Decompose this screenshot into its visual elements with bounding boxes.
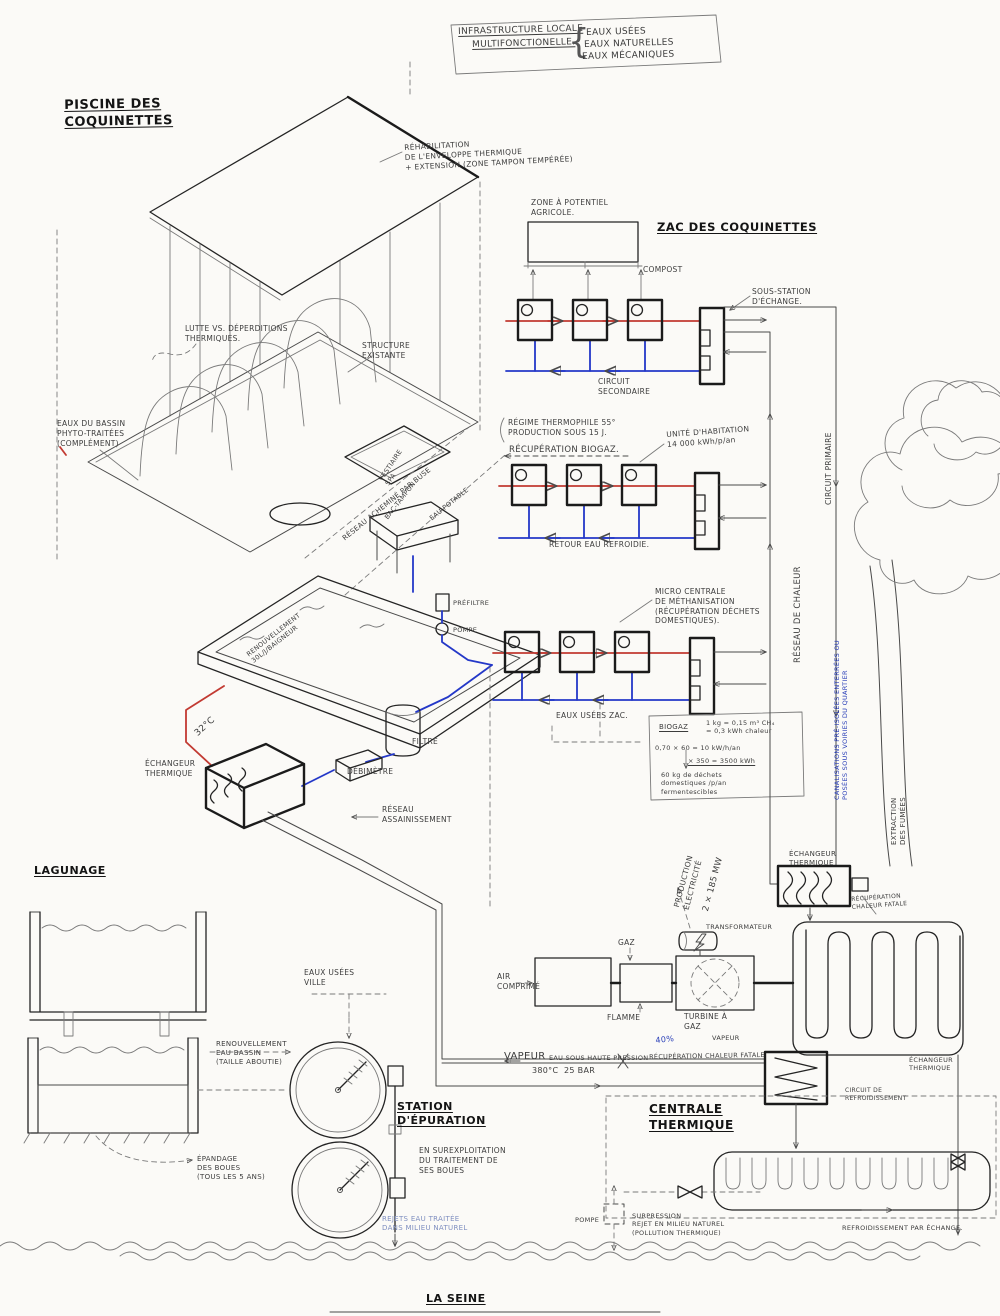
zac-title: ZAC DES COQUINETTES xyxy=(657,220,817,235)
echangeur-thermique-vapeur: ÉCHANGEUR THERMIQUE xyxy=(909,1056,953,1073)
biogaz-dechets: 60 kg de déchets domestiques /p/an ferme… xyxy=(661,771,727,796)
recuperation-biogaz: RÉCUPÉRATION BIOGAZ. xyxy=(509,445,619,456)
surpression: SURPRESSION REJET EN MILIEU NATUREL (POL… xyxy=(632,1212,724,1237)
canalisations: CANALISATIONS PRÉ-ISOLÉES ENTERRÉES OU P… xyxy=(833,640,850,800)
temp-380: 380°C 25 BAR xyxy=(532,1066,595,1076)
lagunage: LAGUNAGE xyxy=(34,864,106,878)
turbine-a-gaz: TURBINE À GAZ xyxy=(684,1012,727,1032)
station-epuration: STATION D'ÉPURATION xyxy=(397,1100,486,1129)
circuit-secondaire: CIRCUIT SECONDAIRE xyxy=(598,377,650,397)
title-line1: INFRASTRUCTURE LOCALE xyxy=(458,24,583,39)
pompe-rejet: POMPE xyxy=(575,1216,599,1224)
extraction-fumees: EXTRACTION DES FUMÉES xyxy=(890,797,908,845)
eaux-usees-ville: EAUX USÉES VILLE xyxy=(304,968,354,988)
eau-potable: EAU POTABLE xyxy=(428,486,470,523)
echangeur-thermique-piscine: ÉCHANGEUR THERMIQUE xyxy=(145,759,195,779)
eaux-bassin: EAUX DU BASSIN PHYTO-TRAITÉES (COMPLÉMEN… xyxy=(57,419,125,448)
pourcent-40: 40% xyxy=(655,1034,675,1046)
unite-habitation: UNITÉ D'HABITATION 14 000 kWh/p/an xyxy=(666,424,750,449)
retour-eau-refroidie: RETOUR EAU REFROIDIE. xyxy=(549,540,649,550)
title-line2: MULTIFONCTIONELLE. xyxy=(472,37,575,51)
temp-32: 32°C xyxy=(193,715,218,739)
biogaz-titre: BIOGAZ xyxy=(659,723,688,732)
compost: COMPOST xyxy=(643,265,682,275)
lutte-deperditions: LUTTE VS. DÉPERDITIONS THERMIQUES. xyxy=(185,324,288,344)
la-seine: LA SEINE xyxy=(426,1292,486,1306)
circuit-primaire: CIRCUIT PRIMAIRE xyxy=(824,432,834,505)
gaz: GAZ xyxy=(618,938,635,948)
prefiltre: PRÉFILTRE xyxy=(453,599,489,607)
vapeur-petit: VAPEUR xyxy=(712,1034,740,1042)
eau-haute-pression: EAU SOUS HAUTE PRESSION xyxy=(549,1054,648,1062)
rejets-eau-traitee: REJETS EAU TRAITÉE DANS MILIEU NATUREL xyxy=(382,1215,468,1233)
rehab-note: RÉHABILITATION DE L'ENVELOPPE THERMIQUE … xyxy=(404,134,573,172)
circuit-refroidissement: CIRCUIT DE REFROIDISSEMENT xyxy=(845,1087,907,1103)
puissance-mw: 2 × 185 MW xyxy=(701,856,726,913)
renouvellement-baigneur: RENOUVELLEMENT 30L/J/BAIGNEUR xyxy=(245,611,307,665)
sketch-canvas: INFRASTRUCTURE LOCALEMULTIFONCTIONELLE.{… xyxy=(0,0,1000,1316)
epandage-boues: ÉPANDAGE DES BOUES (TOUS LES 5 ANS) xyxy=(197,1155,265,1182)
micro-centrale: MICRO CENTRALE DE MÉTHANISATION (RÉCUPÉR… xyxy=(655,587,760,626)
debimetre: DÉBIMÈTRE xyxy=(347,767,393,777)
piscine-title: PISCINE DES COQUINETTES xyxy=(64,96,173,132)
reseau-de-chaleur: RÉSEAU DE CHALEUR xyxy=(793,566,804,663)
regime-thermophile: RÉGIME THERMOPHILE 55° PRODUCTION SOUS 1… xyxy=(508,418,616,438)
surexploitation: EN SUREXPLOITATION DU TRAITEMENT DE SES … xyxy=(419,1146,506,1175)
sous-station: SOUS-STATION D'ÉCHANGE. xyxy=(752,287,811,307)
echangeur-thermique-reseau: ÉCHANGEUR THERMIQUE xyxy=(789,850,836,868)
centrale-thermique: CENTRALE THERMIQUE xyxy=(649,1102,734,1133)
zone-agricole: ZONE À POTENTIEL AGRICOLE. xyxy=(531,198,608,218)
filtre: FILTRE xyxy=(412,737,438,747)
labels-layer: INFRASTRUCTURE LOCALEMULTIFONCTIONELLE.{… xyxy=(0,0,1000,1316)
biogaz-equiv: 1 kg = 0,15 m³ CH₄ = 0,3 kWh chaleur xyxy=(706,719,775,736)
vapeur: VAPEUR xyxy=(504,1050,545,1063)
production-electricite: PRODUCTION ÉLECTRICITÉ xyxy=(672,854,705,911)
refroidissement-echange: REFROIDISSEMENT PAR ÉCHANGE. xyxy=(842,1224,963,1232)
biogaz-calc2: × 350 = 3500 kWh xyxy=(688,757,755,765)
recuperation-fatale-bas: RÉCUPÉRATION CHALEUR FATALE xyxy=(649,1051,765,1061)
pompe-piscine: POMPE xyxy=(453,626,477,634)
recuperation-fatale-haut: RÉCUPÉRATION CHALEUR FATALE xyxy=(851,892,908,911)
title-item-eaux-mecaniques: EAUX MÉCANIQUES xyxy=(582,50,675,64)
air-comprime: AIR COMPRIMÉ xyxy=(497,972,540,992)
structure-existante: STRUCTURE EXISTANTE xyxy=(362,341,410,361)
reseau-assainissement: RÉSEAU ASSAINISSEMENT xyxy=(382,805,452,825)
transformateur: TRANSFORMATEUR xyxy=(706,923,772,931)
eaux-usees-zac: EAUX USÉES ZAC. xyxy=(556,711,628,721)
biogaz-calc1: 0,70 × 60 = 10 kW/h/an xyxy=(655,744,741,752)
flamme: FLAMME xyxy=(607,1013,640,1023)
renouvellement-bassin: RENOUVELLEMENT EAU BASSIN (TAILLE ABOUTI… xyxy=(216,1040,287,1067)
